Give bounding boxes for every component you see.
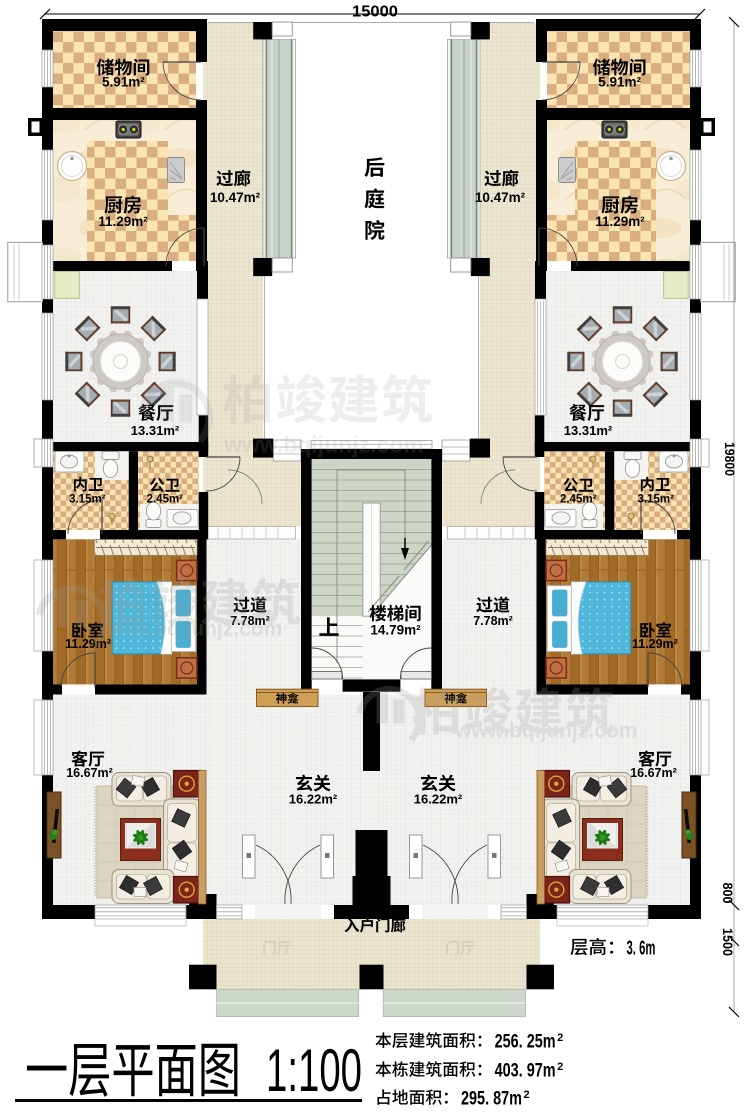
- svg-text:3.15m²: 3.15m²: [637, 494, 674, 506]
- svg-text:13.31m²: 13.31m²: [564, 423, 613, 438]
- svg-text:800: 800: [720, 883, 735, 904]
- svg-text:19800: 19800: [722, 442, 737, 476]
- svg-text:2: 2: [557, 1061, 563, 1073]
- svg-text:13.31m²: 13.31m²: [131, 423, 180, 438]
- svg-text:2: 2: [524, 1089, 530, 1101]
- svg-text:256. 25m: 256. 25m: [495, 1031, 556, 1053]
- svg-text:3.15m²: 3.15m²: [69, 494, 106, 506]
- svg-text:295. 87m: 295. 87m: [461, 1088, 522, 1110]
- svg-text:403. 97m: 403. 97m: [495, 1060, 556, 1082]
- svg-text:www.bqijunjz.com: www.bqijunjz.com: [223, 431, 424, 457]
- svg-text:11.29m²: 11.29m²: [632, 637, 678, 651]
- svg-text:11.29m²: 11.29m²: [595, 214, 645, 229]
- svg-text:1500: 1500: [720, 928, 735, 956]
- svg-text:www.bqijunjz.com: www.bqijunjz.com: [454, 720, 637, 743]
- svg-text:2: 2: [557, 1032, 563, 1044]
- svg-text:16.67m²: 16.67m²: [630, 766, 677, 780]
- svg-text:2.45m²: 2.45m²: [147, 494, 184, 506]
- svg-text:16.22m²: 16.22m²: [289, 792, 338, 807]
- svg-text:11.29m²: 11.29m²: [98, 214, 148, 229]
- svg-text:www.bqijunjz.com: www.bqijunjz.com: [99, 618, 282, 641]
- svg-text:3. 6m: 3. 6m: [627, 938, 656, 960]
- svg-text:16.22m²: 16.22m²: [414, 792, 463, 807]
- svg-text:15000: 15000: [352, 4, 398, 21]
- svg-text:14.79m²: 14.79m²: [370, 622, 421, 637]
- svg-text:10.47m²: 10.47m²: [475, 190, 526, 205]
- svg-text:1:100: 1:100: [266, 1037, 362, 1104]
- svg-text:7.78m²: 7.78m²: [473, 614, 513, 628]
- svg-text:16.67m²: 16.67m²: [66, 766, 113, 780]
- svg-text:10.47m²: 10.47m²: [210, 190, 261, 205]
- svg-text:2.45m²: 2.45m²: [560, 494, 597, 506]
- svg-text:5.91m²: 5.91m²: [102, 75, 145, 90]
- svg-text:5.91m²: 5.91m²: [598, 75, 641, 90]
